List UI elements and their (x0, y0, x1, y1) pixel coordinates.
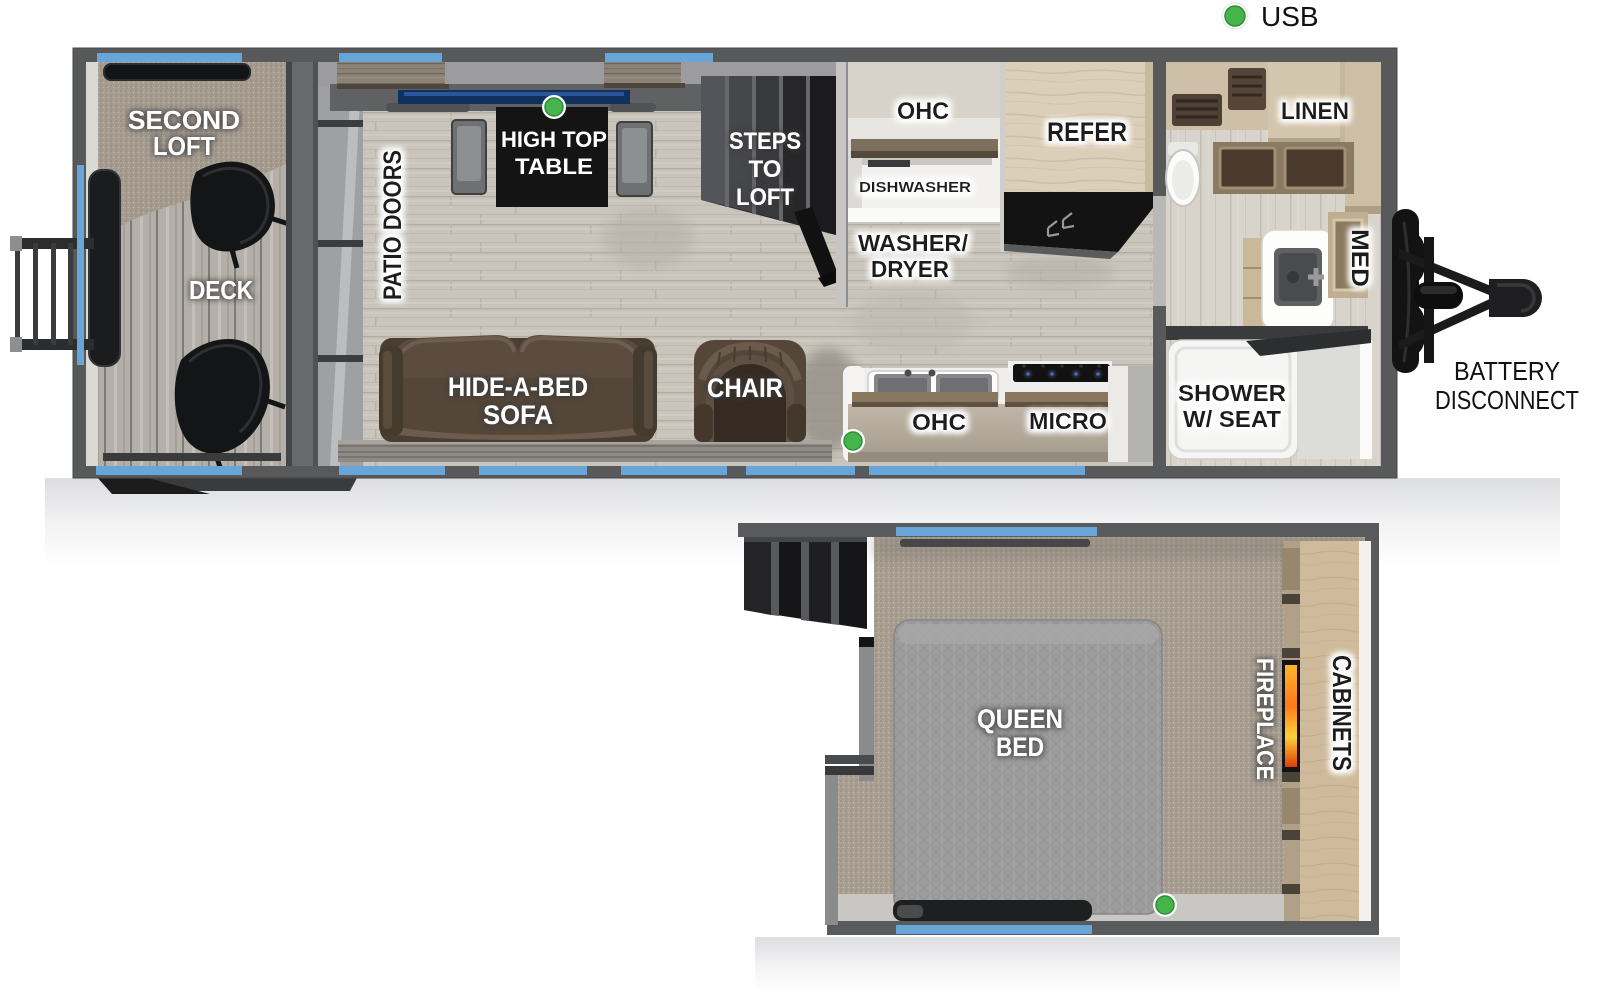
svg-text:MED: MED (1346, 229, 1373, 287)
svg-text:DECK: DECK (189, 275, 253, 305)
svg-text:WASHER/: WASHER/ (858, 230, 969, 256)
svg-text:CABINETS: CABINETS (1327, 655, 1357, 771)
svg-text:LINEN: LINEN (1281, 98, 1349, 125)
svg-text:REFER: REFER (1047, 117, 1127, 147)
svg-text:OHC: OHC (912, 409, 966, 435)
svg-text:LOFT: LOFT (736, 184, 794, 211)
svg-text:MICRO: MICRO (1029, 408, 1107, 434)
svg-text:BED: BED (996, 732, 1044, 762)
svg-text:STEPS: STEPS (729, 128, 801, 155)
svg-text:HIDE-A-BED: HIDE-A-BED (448, 372, 588, 402)
svg-text:DISCONNECT: DISCONNECT (1435, 385, 1579, 415)
svg-text:LOFT: LOFT (153, 131, 215, 161)
svg-text:TABLE: TABLE (515, 154, 593, 179)
svg-text:DRYER: DRYER (871, 256, 949, 282)
svg-text:HIGH TOP: HIGH TOP (501, 127, 607, 152)
svg-text:BATTERY: BATTERY (1454, 356, 1560, 386)
svg-text:PATIO DOORS: PATIO DOORS (379, 150, 407, 300)
svg-text:USB: USB (1261, 1, 1319, 32)
svg-text:DISHWASHER: DISHWASHER (859, 179, 971, 196)
svg-text:CHAIR: CHAIR (707, 373, 783, 403)
svg-text:QUEEN: QUEEN (977, 704, 1063, 734)
svg-text:SHOWER: SHOWER (1178, 380, 1286, 406)
svg-text:OHC: OHC (897, 98, 949, 125)
svg-text:TO: TO (749, 156, 782, 183)
svg-text:W/ SEAT: W/ SEAT (1183, 406, 1281, 432)
svg-text:FIREPLACE: FIREPLACE (1251, 658, 1278, 780)
svg-text:SOFA: SOFA (483, 400, 553, 430)
